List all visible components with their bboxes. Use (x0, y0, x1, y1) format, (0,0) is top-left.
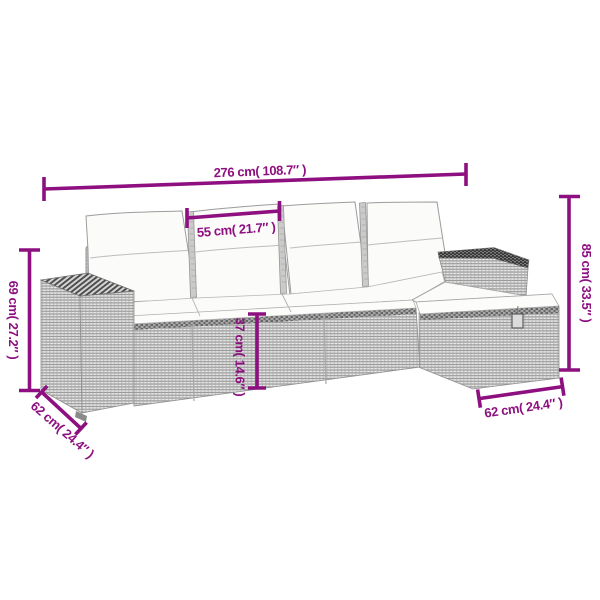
svg-text:69 cm( 27.2″ ): 69 cm( 27.2″ ) (6, 281, 21, 360)
svg-text:85 cm( 33.5″ ): 85 cm( 33.5″ ) (579, 244, 594, 323)
svg-text:37 cm( 14.6″ ): 37 cm( 14.6″ ) (233, 318, 248, 397)
